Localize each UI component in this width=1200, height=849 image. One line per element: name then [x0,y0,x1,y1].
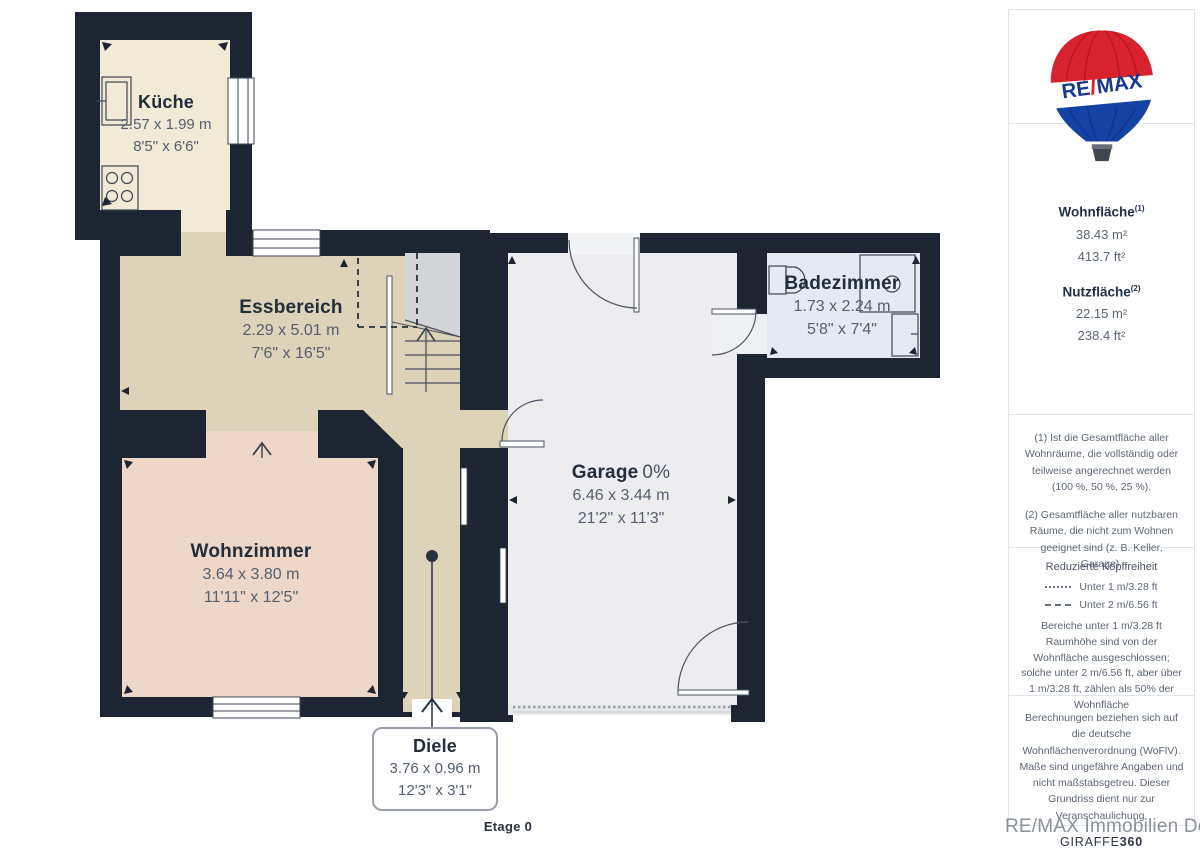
room-size-ft: 8'5" x 6'6" [121,137,212,157]
room-size-m: 3.64 x 3.80 m [191,565,312,586]
room-callout-diele: Diele 3.76 x 0.96 m 12'3" x 3'1" [372,727,498,811]
room-size-m: 6.46 x 3.44 m [572,486,671,507]
room-size-m: 2.57 x 1.99 m [121,115,212,135]
agency-watermark: RE/MAX Immobilien DeLux [1005,816,1195,838]
room-size-m: 2.29 x 5.01 m [239,321,342,342]
footnote-marker: (1) [1135,204,1145,213]
legend-under-2m: Unter 2 m/6.56 ft [1019,599,1184,611]
kueche-window [228,78,254,144]
room-label-essbereich: Essbereich 2.29 x 5.01 m 7'6" x 16'5" [239,297,342,365]
essbereich-window [253,230,320,256]
floor-label: Etage 0 [448,819,568,834]
room-size-ft: 21'2" x 11'3" [572,509,671,530]
room-size-ft: 11'11" x 12'5" [191,588,312,609]
area-label: Nutzfläche [1062,284,1130,299]
room-size-m: 3.76 x 0.96 m [376,759,494,779]
room-label-garage: Garage0% 6.46 x 3.44 m 21'2" x 11'3" [572,462,671,530]
room-size-m: 1.73 x 2.24 m [785,297,900,318]
room-size-ft: 12'3" x 3'1" [376,781,494,801]
room-size-ft: 5'8" x 7'4" [785,320,900,341]
balloon-basket-top [1092,144,1113,149]
floorplan-page: { "plan": { "floor_label": "Etage 0", "r… [0,0,1200,848]
room-name: Essbereich [239,297,342,319]
nutzflaeche-group: Nutzfläche(2) 22.15 m² 238.4 ft² [1009,284,1194,344]
area-ft2: 413.7 ft² [1009,249,1194,264]
room-size-ft: 7'6" x 16'5" [239,344,342,365]
remax-balloon-logo: RE/MAX [1046,26,1158,186]
room-name: Diele [376,736,494,757]
wohnflaeche-group: Wohnfläche(1) 38.43 m² 413.7 ft² [1009,204,1194,264]
room-label-badezimmer: Badezimmer 1.73 x 2.24 m 5'8" x 7'4" [785,273,900,341]
disclaimer-box: Berechnungen beziehen sich auf die deuts… [1008,695,1195,826]
area-m2: 38.43 m² [1009,227,1194,242]
room-percent: 0% [642,462,670,483]
balloon-basket [1093,149,1112,161]
room-name: Garage [572,462,639,483]
headroom-title: Reduzierte Kopffreiheit [1019,561,1184,573]
dashed-line-icon [1045,604,1071,606]
headroom-box: Reduzierte Kopffreiheit Unter 1 m/3.28 f… [1008,547,1195,696]
footnote-marker: (2) [1131,284,1141,293]
room-label-wohnzimmer: Wohnzimmer 3.64 x 3.80 m 11'11" x 12'5" [191,541,312,609]
room-name: Wohnzimmer [191,541,312,563]
footnotes-box: (1) Ist die Gesamtfläche aller Wohnräume… [1008,414,1195,548]
legend-under-1m: Unter 1 m/3.28 ft [1019,581,1184,593]
room-name: Badezimmer [785,273,900,295]
room-label-kueche: Küche 2.57 x 1.99 m 8'5" x 6'6" [121,92,212,156]
disclaimer-text: Berechnungen beziehen sich auf die deuts… [1019,710,1184,824]
area-ft2: 238.4 ft² [1009,328,1194,343]
dotted-line-icon [1045,586,1071,588]
area-m2: 22.15 m² [1009,306,1194,321]
wohnzimmer-window [213,697,300,718]
footnote-1: (1) Ist die Gesamtfläche aller Wohnräume… [1021,430,1182,495]
room-name: Küche [121,92,212,113]
area-label: Wohnfläche [1058,205,1134,220]
